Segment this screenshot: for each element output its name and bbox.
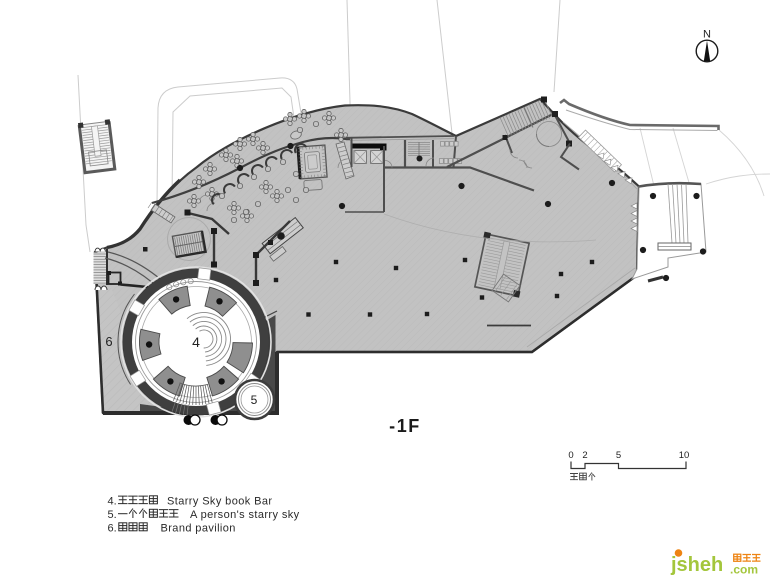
svg-text:5: 5	[251, 393, 258, 407]
svg-text:2: 2	[582, 450, 587, 461]
svg-text:5.: 5.	[108, 509, 117, 521]
svg-text:0: 0	[568, 450, 573, 461]
svg-text:Brand pavilion: Brand pavilion	[161, 523, 236, 535]
svg-text:4: 4	[192, 334, 200, 350]
svg-text:jsheh: jsheh	[670, 554, 723, 576]
svg-text:10: 10	[679, 450, 690, 461]
svg-text:.com: .com	[730, 563, 758, 577]
svg-text:A person's starry sky: A person's starry sky	[190, 509, 300, 521]
svg-text:5: 5	[616, 450, 621, 461]
svg-text:6.: 6.	[108, 523, 117, 535]
svg-text:4.: 4.	[108, 496, 117, 508]
svg-text:Starry Sky book Bar: Starry Sky book Bar	[167, 496, 272, 508]
svg-text:N: N	[703, 29, 711, 41]
svg-text:6: 6	[105, 334, 112, 349]
svg-text:-1F: -1F	[389, 416, 421, 436]
